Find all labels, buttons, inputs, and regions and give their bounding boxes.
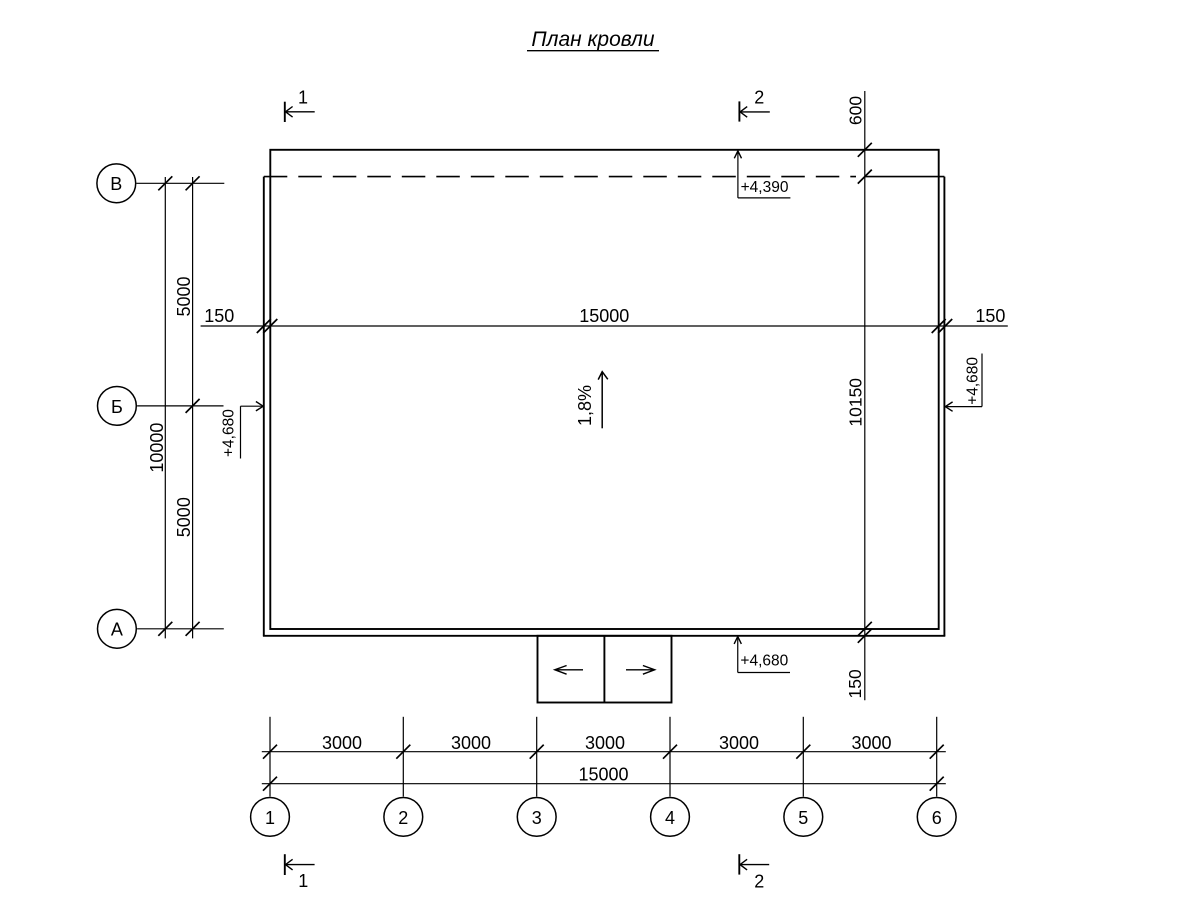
- svg-text:1: 1: [298, 871, 308, 891]
- svg-text:3000: 3000: [322, 733, 362, 753]
- svg-text:10150: 10150: [845, 378, 865, 427]
- svg-text:4: 4: [665, 808, 675, 828]
- svg-text:2: 2: [754, 87, 764, 107]
- svg-text:+4,680: +4,680: [221, 409, 238, 457]
- svg-text:3000: 3000: [585, 733, 625, 753]
- svg-text:5000: 5000: [174, 276, 194, 316]
- svg-text:6: 6: [932, 808, 942, 828]
- svg-text:Б: Б: [111, 397, 123, 417]
- svg-text:1,8%: 1,8%: [575, 385, 595, 426]
- svg-text:15000: 15000: [579, 306, 629, 326]
- svg-text:600: 600: [845, 96, 865, 125]
- svg-text:1: 1: [298, 88, 308, 108]
- svg-text:15000: 15000: [578, 765, 628, 785]
- svg-text:3000: 3000: [851, 733, 891, 753]
- svg-text:5000: 5000: [174, 497, 194, 537]
- svg-text:150: 150: [975, 306, 1005, 326]
- svg-text:+4,680: +4,680: [964, 357, 981, 405]
- svg-text:2: 2: [754, 872, 764, 892]
- svg-text:150: 150: [845, 669, 865, 698]
- svg-text:А: А: [111, 620, 123, 640]
- svg-text:В: В: [110, 174, 122, 194]
- svg-text:10000: 10000: [147, 423, 167, 473]
- svg-text:2: 2: [398, 808, 408, 828]
- svg-text:3000: 3000: [719, 733, 759, 753]
- svg-text:План кровли: План кровли: [531, 28, 655, 51]
- svg-text:1: 1: [265, 808, 275, 828]
- svg-text:3000: 3000: [451, 733, 491, 753]
- svg-text:3: 3: [532, 808, 542, 828]
- svg-text:+4,390: +4,390: [741, 179, 789, 196]
- svg-text:150: 150: [204, 306, 234, 326]
- svg-text:5: 5: [798, 808, 808, 828]
- svg-text:+4,680: +4,680: [740, 653, 788, 670]
